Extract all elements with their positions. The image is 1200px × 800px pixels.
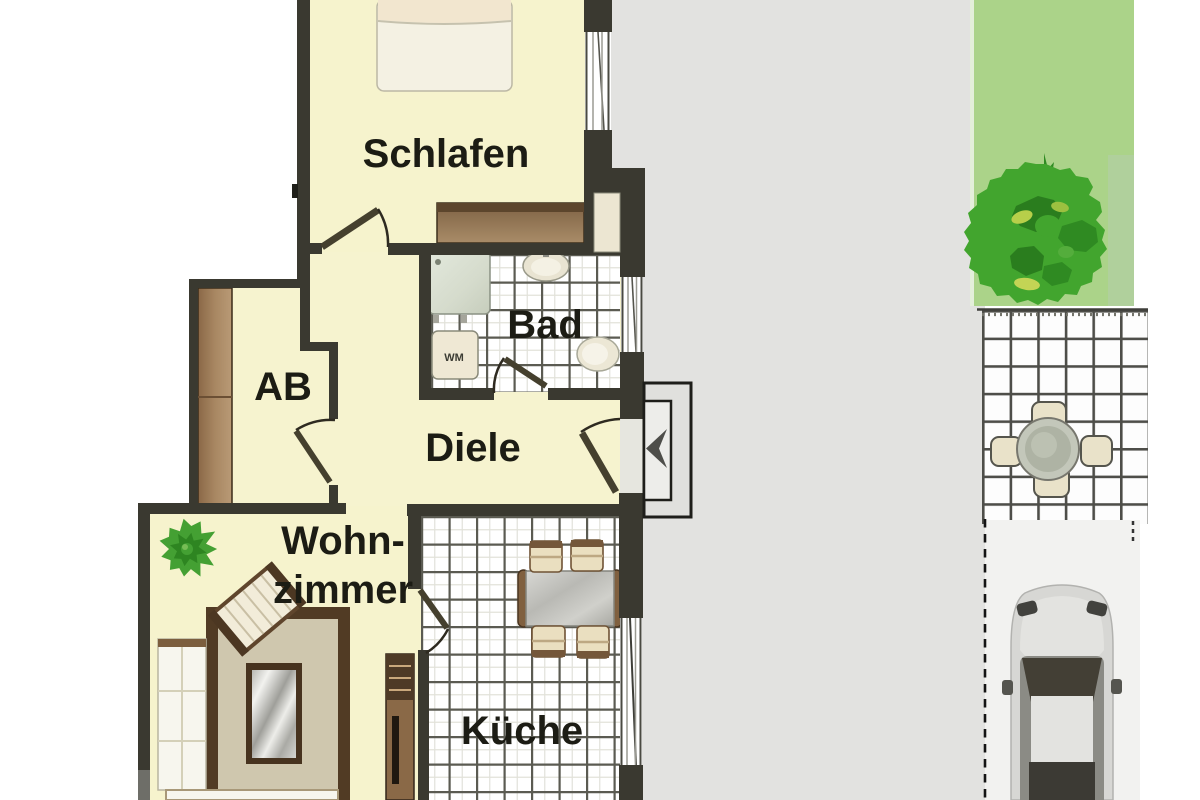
svg-text:Küche: Küche bbox=[461, 709, 583, 753]
svg-text:Diele: Diele bbox=[425, 426, 521, 470]
svg-text:Bad: Bad bbox=[507, 303, 583, 347]
svg-text:Wohn-: Wohn- bbox=[281, 519, 405, 563]
svg-text:zimmer: zimmer bbox=[273, 568, 413, 612]
svg-text:AB: AB bbox=[254, 365, 312, 409]
svg-text:WM: WM bbox=[444, 352, 464, 364]
svg-text:Schlafen: Schlafen bbox=[363, 132, 530, 176]
